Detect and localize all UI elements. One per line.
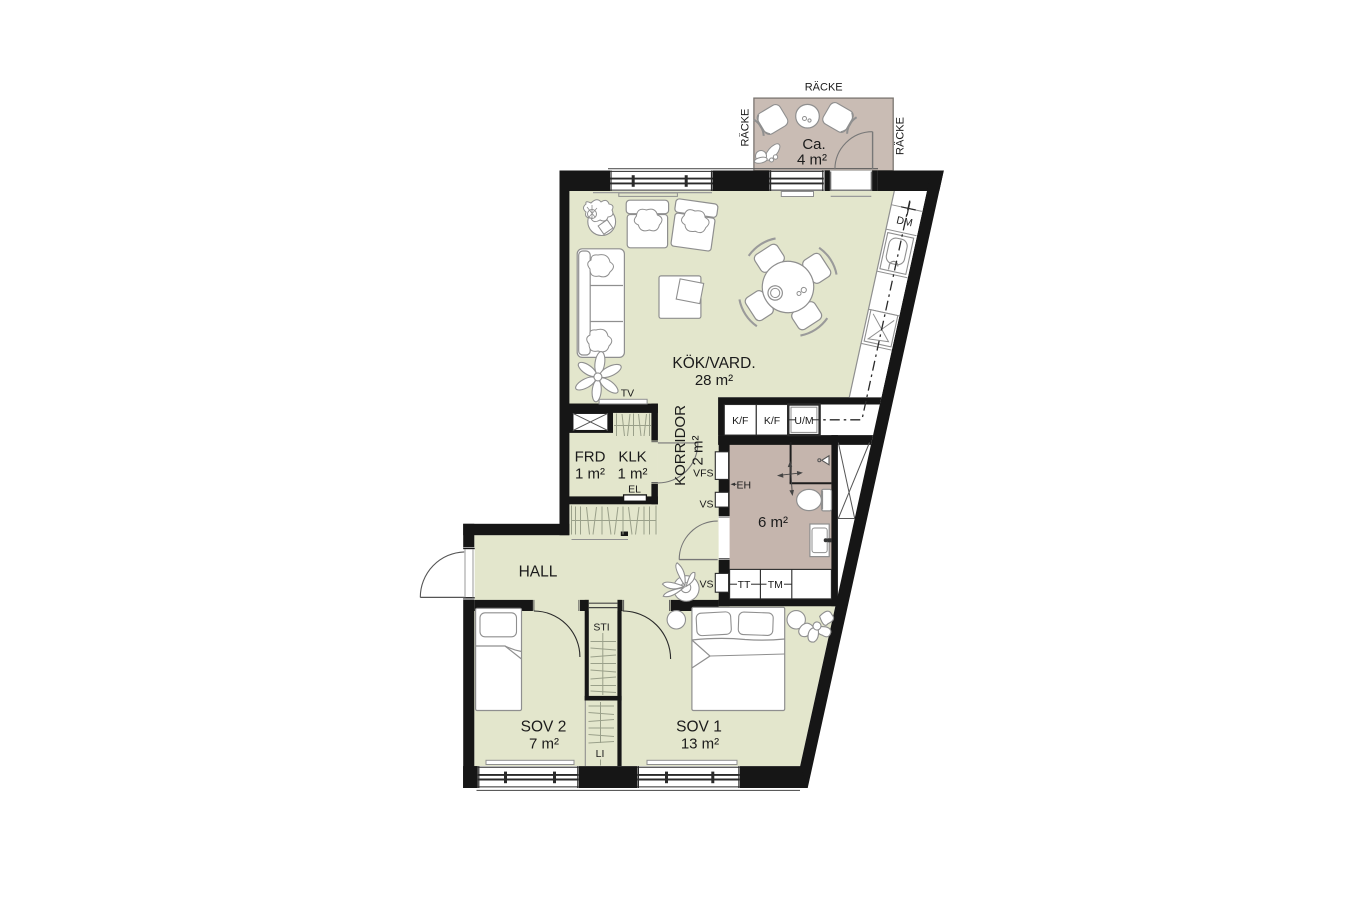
svg-text:KORRIDOR: KORRIDOR	[672, 405, 689, 486]
svg-text:EL: EL	[628, 484, 641, 496]
svg-text:TM: TM	[768, 579, 783, 591]
svg-text:RÄCKE: RÄCKE	[805, 82, 843, 94]
svg-text:SOV 1: SOV 1	[676, 719, 722, 736]
svg-text:13 m²: 13 m²	[681, 736, 719, 753]
svg-text:28 m²: 28 m²	[695, 372, 733, 389]
svg-text:2 m²: 2 m²	[689, 435, 706, 465]
svg-text:KÖK/VARD.: KÖK/VARD.	[672, 354, 755, 372]
svg-text:STI: STI	[593, 622, 609, 634]
svg-text:Ca.: Ca.	[802, 136, 825, 153]
svg-text:K/F: K/F	[764, 415, 780, 427]
svg-text:LI: LI	[596, 748, 605, 760]
svg-text:KLK: KLK	[618, 449, 646, 466]
svg-text:4 m²: 4 m²	[797, 152, 827, 169]
svg-text:EH: EH	[737, 480, 752, 492]
svg-text:1 m²: 1 m²	[618, 466, 648, 483]
svg-text:VS: VS	[699, 579, 713, 591]
svg-text:1 m²: 1 m²	[575, 466, 605, 483]
svg-text:TV: TV	[621, 387, 634, 399]
svg-text:7 m²: 7 m²	[529, 736, 559, 753]
svg-text:HALL: HALL	[519, 564, 558, 581]
svg-text:SOV 2: SOV 2	[521, 719, 567, 736]
svg-text:RÄCKE: RÄCKE	[895, 117, 907, 155]
svg-text:VS: VS	[699, 499, 713, 511]
svg-text:TT: TT	[738, 579, 751, 591]
svg-text:U/M: U/M	[794, 415, 813, 427]
svg-text:VFS: VFS	[693, 468, 713, 480]
svg-text:FRD: FRD	[575, 449, 606, 466]
svg-text:K/F: K/F	[732, 415, 748, 427]
svg-text:RÄCKE: RÄCKE	[740, 109, 752, 147]
svg-text:6 m²: 6 m²	[758, 514, 788, 531]
